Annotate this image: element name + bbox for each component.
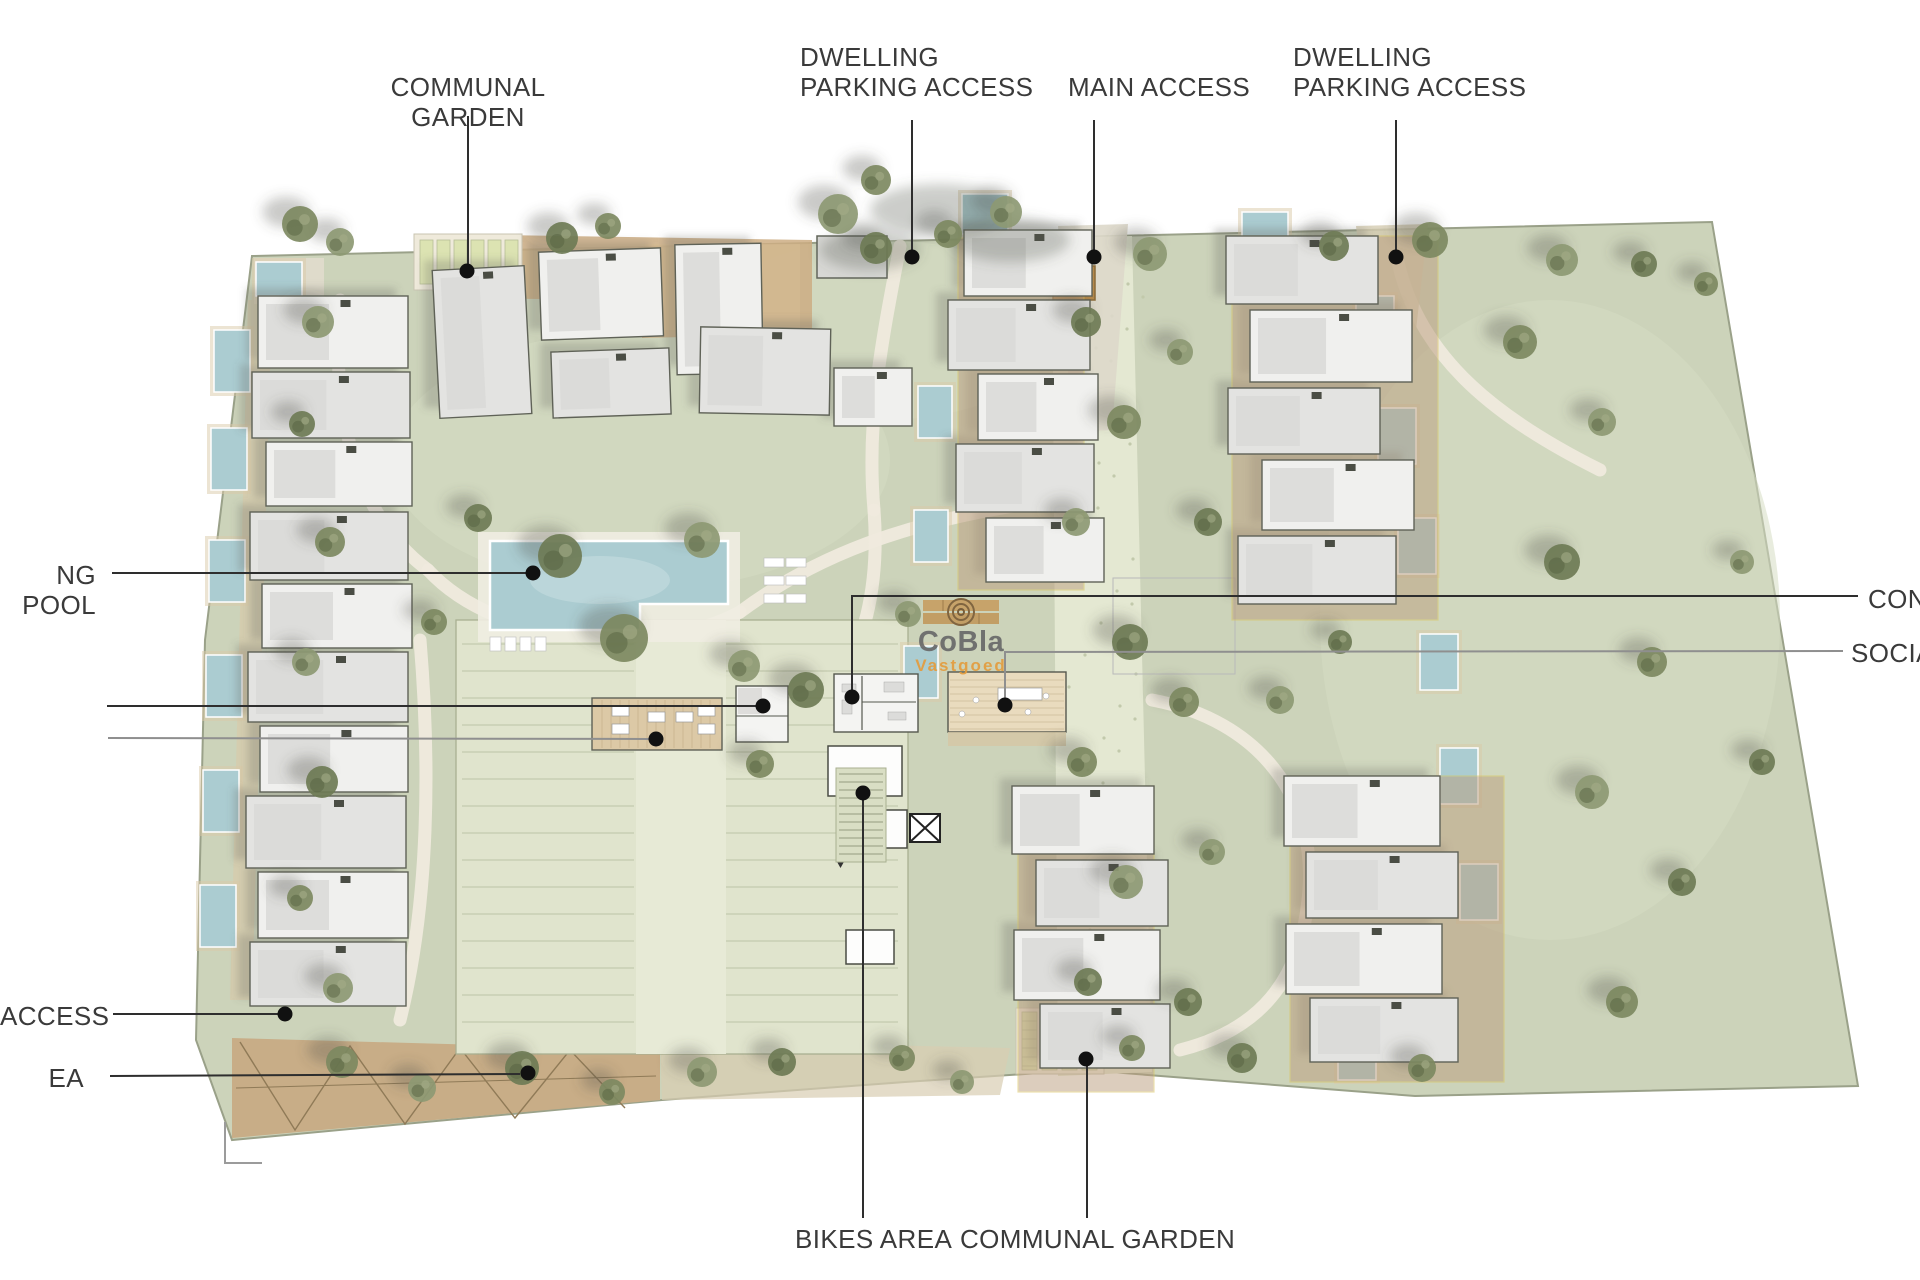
gym-equipment <box>676 712 693 722</box>
tree-canopy-light <box>1187 994 1195 1002</box>
tree-canopy-light <box>607 219 615 227</box>
roof-level <box>956 308 1016 362</box>
tree-canopy-light <box>1211 845 1219 853</box>
tree-canopy-light <box>1621 993 1631 1003</box>
tree-canopy-light <box>1643 257 1651 265</box>
tree-canopy-light <box>477 510 485 518</box>
paving-dot <box>1097 461 1100 464</box>
paving-dot <box>1126 282 1129 285</box>
roof-level <box>986 382 1036 432</box>
private-pool <box>918 386 952 438</box>
leader-concierge-dot <box>845 690 860 705</box>
paving-dot <box>1131 557 1134 560</box>
leader-dwelling-parking-right-dot <box>1389 250 1404 265</box>
tree-canopy-light <box>1207 514 1215 522</box>
roof-vent <box>1391 1002 1401 1009</box>
tree-canopy-light <box>1429 230 1440 241</box>
roof-vent <box>1044 378 1054 385</box>
roof-vent <box>1370 780 1380 787</box>
tree-canopy-light <box>1125 873 1135 883</box>
roof-level <box>1270 468 1334 522</box>
roof-vent <box>341 300 351 307</box>
tree-canopy-light <box>1339 635 1346 642</box>
house <box>1250 310 1412 382</box>
tree-canopy-light <box>341 1053 351 1063</box>
sun-lounger <box>786 558 806 567</box>
roof-vent <box>1026 304 1036 311</box>
roof-level <box>1044 868 1099 918</box>
tree-canopy-light <box>701 1064 710 1073</box>
tree-canopy-light <box>1087 974 1095 982</box>
tree-canopy-light <box>1005 203 1015 213</box>
sun-lounger <box>786 576 806 585</box>
tree-canopy-light <box>561 229 571 239</box>
roof-vent <box>1346 464 1356 471</box>
tree-canopy-light <box>1519 333 1529 343</box>
roof-level <box>441 276 486 410</box>
tree-canopy-light <box>961 1075 968 1082</box>
label-communal-garden-top: COMMUNAL GARDEN <box>340 72 596 132</box>
tree-canopy-light <box>759 756 767 764</box>
tree-canopy-light <box>1075 514 1083 522</box>
house <box>1306 852 1458 918</box>
label-area-cropped: EA <box>20 1063 84 1093</box>
gym-equipment <box>698 706 715 716</box>
roof-level <box>1234 244 1298 296</box>
gym-equipment <box>612 706 629 716</box>
tree-canopy-light <box>875 239 885 249</box>
roof-vent <box>1339 314 1349 321</box>
label-main-access: MAIN ACCESS <box>1068 72 1250 102</box>
house <box>1262 460 1414 530</box>
house <box>1226 236 1378 304</box>
sun-lounger <box>764 576 784 585</box>
tree-canopy-light <box>317 313 327 323</box>
roof-vent <box>1032 448 1042 455</box>
tree-canopy-light <box>1741 555 1748 562</box>
roof-level <box>270 592 333 640</box>
watermark-subtitle: Vastgoed <box>903 656 1019 675</box>
label-social-cropped: SOCIA <box>1851 638 1920 668</box>
roof-vent <box>877 372 887 379</box>
house <box>1228 388 1380 454</box>
tree-canopy-light <box>611 1085 619 1093</box>
roof-vent <box>339 376 349 383</box>
leader-dwelling-parking-left-dot <box>905 250 920 265</box>
roof-level <box>559 358 610 410</box>
roof-vent <box>341 730 351 737</box>
sun-lounger <box>764 594 784 603</box>
roof-level <box>964 452 1022 504</box>
house <box>1310 998 1458 1062</box>
roof-level <box>1292 784 1358 838</box>
roof-level <box>1020 794 1080 846</box>
house <box>834 368 912 426</box>
tree-canopy-light <box>781 1054 789 1062</box>
tree-canopy-light <box>1123 413 1133 423</box>
watermark: CoBla Vastgoed <box>903 596 1019 675</box>
furniture <box>884 682 904 692</box>
tree-canopy-light <box>1651 654 1660 663</box>
tree-canopy-light <box>421 1080 429 1088</box>
house <box>978 374 1098 440</box>
tree-canopy-light <box>1149 245 1159 255</box>
label-concierge-cropped: CON <box>1868 584 1920 614</box>
roof-vent <box>336 946 346 953</box>
label-access-cropped: ACCESS <box>0 1001 98 1031</box>
house <box>1012 786 1154 854</box>
roof-level <box>274 450 335 498</box>
roof-level <box>1048 1012 1103 1060</box>
paving-dot <box>1083 653 1086 656</box>
tree-canopy-light <box>299 214 310 225</box>
roof-vent <box>1372 928 1382 935</box>
site-plan-canvas: COMMUNAL GARDEN DWELLING PARKING ACCESS … <box>0 0 1920 1280</box>
tree-canopy-light <box>1681 874 1689 882</box>
leader-unlabeled-2 <box>108 738 649 739</box>
roof-vent <box>334 800 344 807</box>
tree-canopy-light <box>743 657 753 667</box>
house <box>432 266 532 419</box>
stair-core <box>846 930 894 964</box>
roof-vent <box>1112 1008 1122 1015</box>
roof-vent <box>337 516 347 523</box>
club-deck-south <box>948 732 1066 746</box>
club-chair <box>1025 709 1031 715</box>
paving-dot <box>1141 295 1144 298</box>
paving-dot <box>1067 685 1070 688</box>
paving-dot <box>1115 589 1118 592</box>
tree-canopy-light <box>837 203 849 215</box>
roof-vent <box>606 253 616 260</box>
label-dwelling-parking-access-right: DWELLING PARKING ACCESS <box>1293 42 1526 102</box>
tree-canopy-light <box>559 544 572 557</box>
tree-canopy-light <box>901 1051 909 1059</box>
tree-canopy-light <box>299 891 307 899</box>
gym-equipment <box>698 724 715 734</box>
label-dwelling-parking-access-left: DWELLING PARKING ACCESS <box>800 42 1033 102</box>
roof-level <box>1294 932 1360 986</box>
house <box>539 248 664 340</box>
tree-canopy-light <box>623 625 637 639</box>
tree-canopy-light <box>1561 552 1572 563</box>
roof-level <box>254 804 321 860</box>
leader-communal-garden-bottom-dot <box>1079 1052 1094 1067</box>
tree-canopy-light <box>301 417 309 425</box>
paving-dot <box>1118 704 1121 707</box>
roof-vent <box>722 248 732 255</box>
roof-vent <box>1325 540 1335 547</box>
sun-lounger <box>490 637 501 651</box>
private-pool <box>211 428 247 490</box>
tree-canopy-light <box>1081 754 1090 763</box>
sun-lounger <box>535 637 546 651</box>
club-chair <box>959 711 965 717</box>
tree-canopy-light <box>875 172 884 181</box>
label-communal-garden-bottom: COMMUNAL GARDEN <box>960 1224 1235 1254</box>
paving-dot <box>1130 602 1133 605</box>
roof-level <box>1246 544 1312 596</box>
house <box>1286 924 1442 994</box>
roof-vent <box>346 446 356 453</box>
gym-equipment <box>648 712 665 722</box>
tree-canopy-light <box>1761 755 1769 763</box>
tree-canopy-light <box>329 534 338 543</box>
sun-lounger <box>764 558 784 567</box>
house <box>1284 776 1440 846</box>
tree-canopy-light <box>1591 783 1601 793</box>
tree-canopy-light <box>1085 314 1094 323</box>
roof-vent <box>772 332 782 339</box>
tree-canopy-light <box>1183 694 1192 703</box>
house <box>248 652 408 722</box>
leader-bikes-area-dot <box>856 786 871 801</box>
house <box>266 442 412 506</box>
tree-canopy-light <box>339 234 347 242</box>
club-chair <box>1043 693 1049 699</box>
roof-vent <box>1051 522 1061 529</box>
roof-level <box>842 376 875 418</box>
roof-vent <box>1090 790 1100 797</box>
house <box>551 348 671 418</box>
paving-dot <box>1117 749 1120 752</box>
tree-canopy-light <box>1131 1041 1139 1049</box>
tree-canopy-light <box>947 226 955 234</box>
paving-dot <box>1125 327 1128 330</box>
leader-communal-garden-top-dot <box>460 264 475 279</box>
tree-canopy-light <box>1241 1050 1250 1059</box>
tree-canopy-light <box>1561 251 1571 261</box>
parking-aisle <box>636 620 726 1054</box>
house <box>246 796 406 868</box>
furniture <box>888 712 906 720</box>
roof-level <box>1314 860 1378 910</box>
tree-canopy-light <box>1179 345 1187 353</box>
roof-level <box>707 335 763 406</box>
paving-dot <box>1128 442 1131 445</box>
roof-vent <box>616 353 626 360</box>
leader-main-access-dot <box>1087 250 1102 265</box>
tree-canopy-light <box>1421 1060 1429 1068</box>
house <box>1238 536 1396 604</box>
roof-level <box>547 258 601 332</box>
paving-dot <box>1096 506 1099 509</box>
leader-access-dot <box>278 1007 293 1022</box>
roof-vent <box>1390 856 1400 863</box>
club-chair <box>973 697 979 703</box>
tree-canopy-light <box>321 773 331 783</box>
house <box>262 584 412 648</box>
label-bikes-area: BIKES AREA <box>795 1224 952 1254</box>
leader-unlabeled-2-dot <box>649 732 664 747</box>
private-pool <box>1420 634 1458 690</box>
paving-dot <box>1102 736 1105 739</box>
private-pool <box>914 510 948 562</box>
tree-canopy-light <box>1129 632 1140 643</box>
roof-level <box>1318 1006 1380 1054</box>
roof-vent <box>336 656 346 663</box>
tree-canopy-light <box>701 530 712 541</box>
roof-level <box>1258 318 1326 374</box>
tree-canopy-light <box>1705 277 1712 284</box>
gym-equipment <box>612 724 629 734</box>
paving-dot <box>1133 717 1136 720</box>
leader-unlabeled-1-dot <box>756 699 771 714</box>
roof-vent <box>341 876 351 883</box>
tree-canopy-light <box>1333 238 1342 247</box>
private-pool <box>203 770 239 832</box>
roof-vent <box>345 588 355 595</box>
tree-canopy-light <box>433 615 441 623</box>
tree-canopy-light <box>805 680 816 691</box>
watermark-logo-icon <box>921 596 1001 628</box>
leader-area-dot <box>521 1066 536 1081</box>
roof-level <box>994 526 1044 574</box>
roof-vent <box>483 271 493 279</box>
sun-lounger <box>786 594 806 603</box>
roof-vent <box>1312 392 1322 399</box>
house <box>699 327 830 415</box>
house <box>258 296 408 368</box>
leader-swimming-pool-dot <box>526 566 541 581</box>
private-pool <box>200 885 236 947</box>
tree-canopy-light <box>337 980 346 989</box>
roof-vent <box>1094 934 1104 941</box>
paving-dot <box>1112 474 1115 477</box>
tree-canopy-light <box>305 654 313 662</box>
tree-canopy-light <box>1279 692 1287 700</box>
label-swimming-pool-cropped: NG POOL <box>0 560 96 620</box>
roof-level <box>1236 396 1300 446</box>
sun-lounger <box>505 637 516 651</box>
sun-lounger <box>520 637 531 651</box>
tree-canopy-light <box>1601 414 1609 422</box>
leader-social-dot <box>998 698 1013 713</box>
watermark-brand: CoBla <box>903 629 1019 656</box>
